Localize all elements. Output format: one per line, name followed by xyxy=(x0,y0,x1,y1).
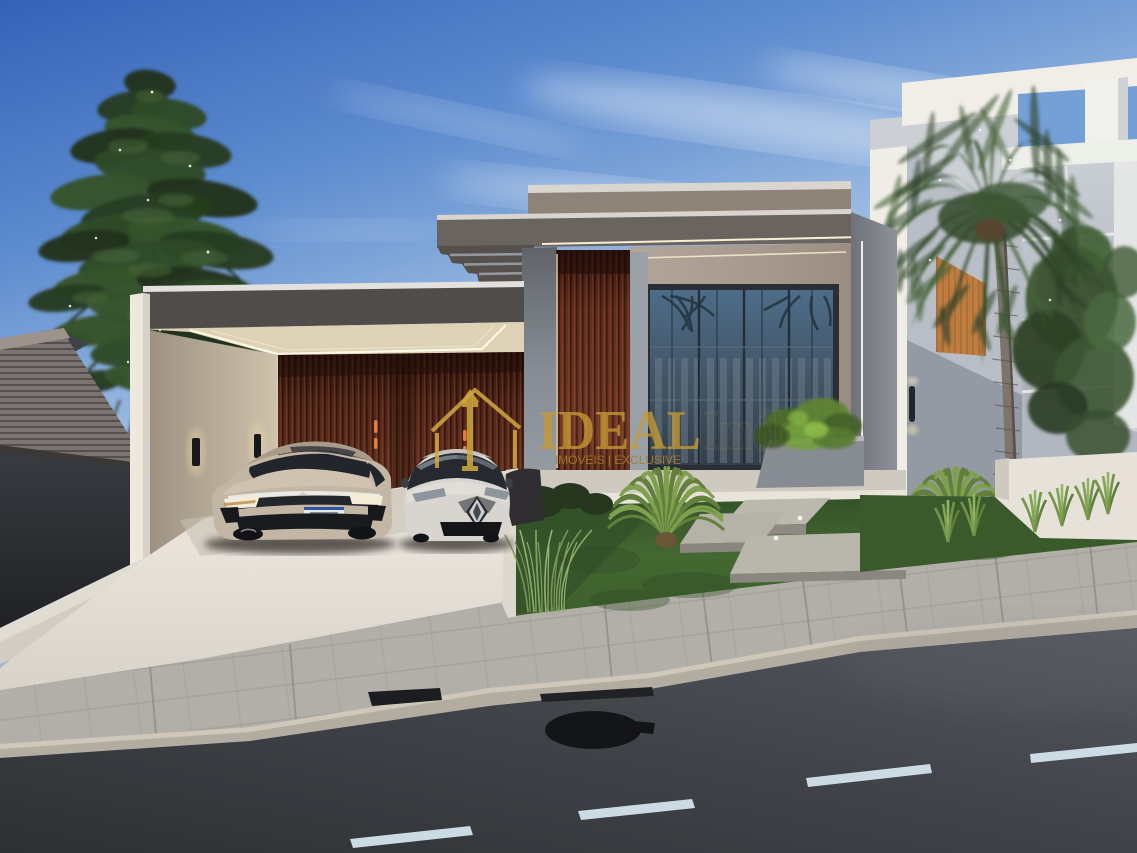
svg-text:Imóh: Imóh xyxy=(703,400,795,462)
svg-text:IMÓVEIS | EXCLUSIVE: IMÓVEIS | EXCLUSIVE xyxy=(555,452,681,467)
